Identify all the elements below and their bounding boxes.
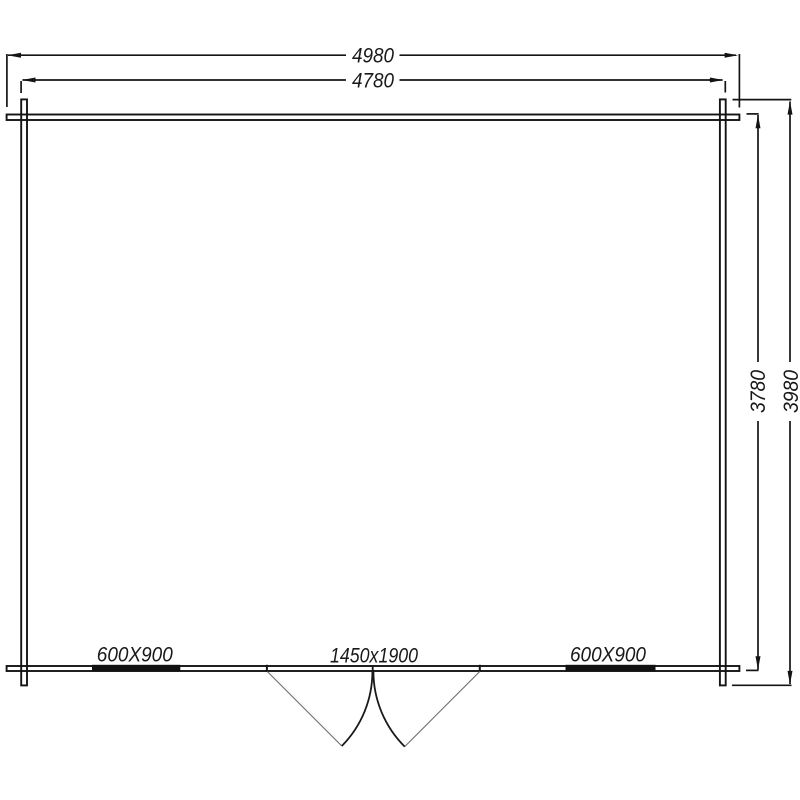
svg-text:3780: 3780 bbox=[747, 370, 770, 413]
svg-text:3980: 3980 bbox=[780, 370, 800, 413]
svg-text:4980: 4980 bbox=[352, 45, 394, 68]
svg-text:600X900: 600X900 bbox=[97, 643, 173, 666]
svg-text:4780: 4780 bbox=[352, 69, 394, 92]
svg-text:600X900: 600X900 bbox=[570, 643, 646, 666]
svg-text:1450x1900: 1450x1900 bbox=[330, 645, 418, 668]
